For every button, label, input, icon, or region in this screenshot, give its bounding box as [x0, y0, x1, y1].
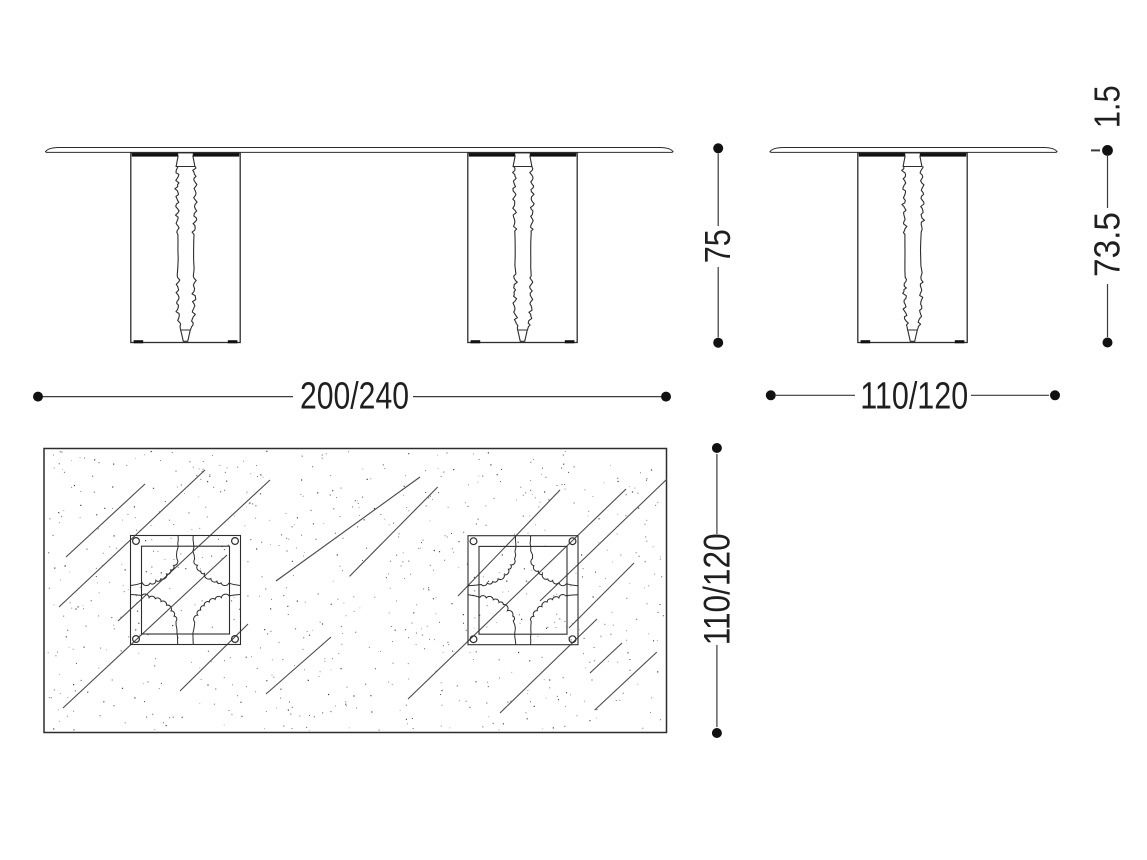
- svg-text:110/120: 110/120: [696, 533, 738, 645]
- svg-text:200/240: 200/240: [300, 375, 409, 417]
- svg-text:73.5: 73.5: [1087, 212, 1128, 277]
- svg-text:75: 75: [697, 229, 738, 263]
- svg-text:1.5: 1.5: [1087, 85, 1128, 128]
- svg-text:110/120: 110/120: [860, 375, 968, 417]
